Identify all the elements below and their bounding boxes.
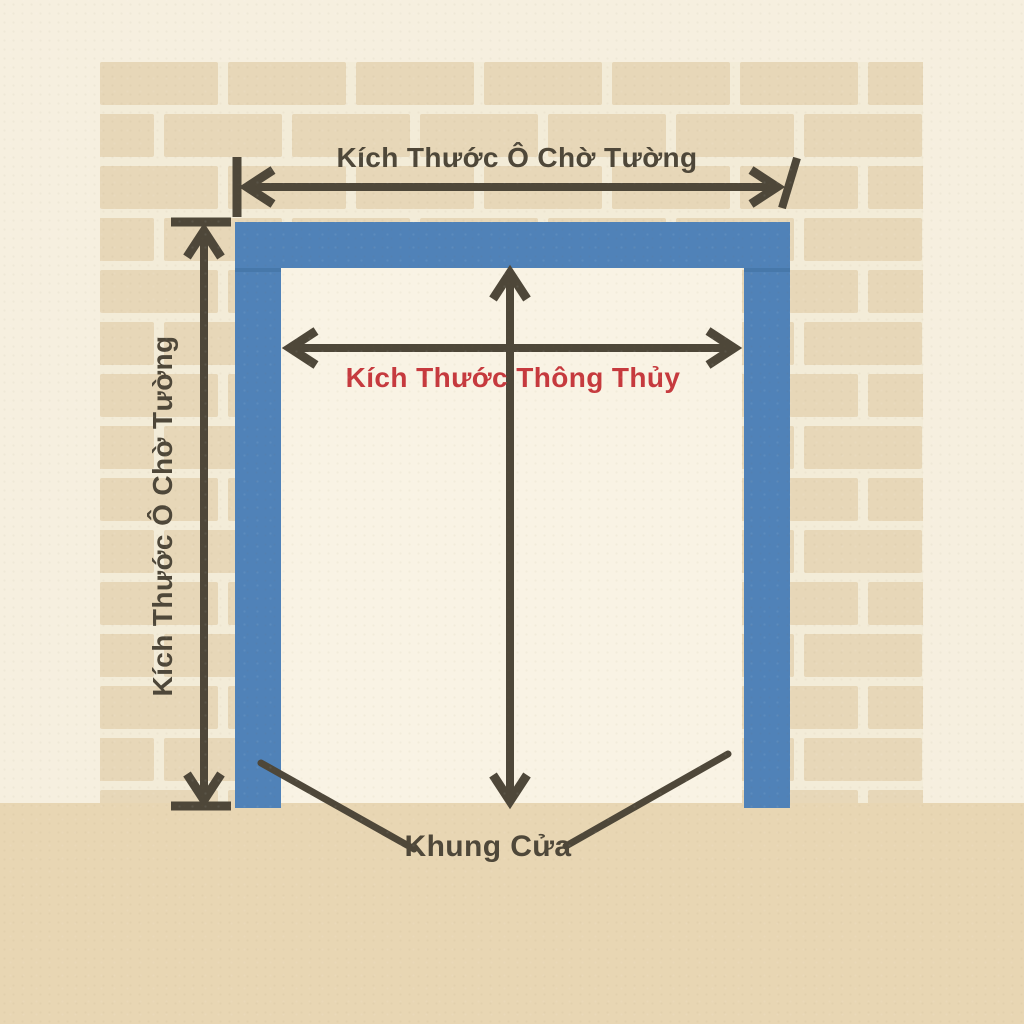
door-frame-label: Khung Cửa xyxy=(405,830,572,864)
clear-opening-label: Kích Thước Thông Thủy xyxy=(346,362,681,394)
wall-opening-height-label: Kích Thước Ô Chờ Tường xyxy=(147,335,179,696)
clear-height-dimension-arrow xyxy=(493,273,527,801)
wall-opening-width-label: Kích Thước Ô Chờ Tường xyxy=(336,142,697,174)
door-measurement-diagram: Kích Thước Ô Chờ Tường Kích Thước Ô Chờ … xyxy=(0,0,1024,1024)
wall-height-dimension-arrow xyxy=(171,222,231,806)
